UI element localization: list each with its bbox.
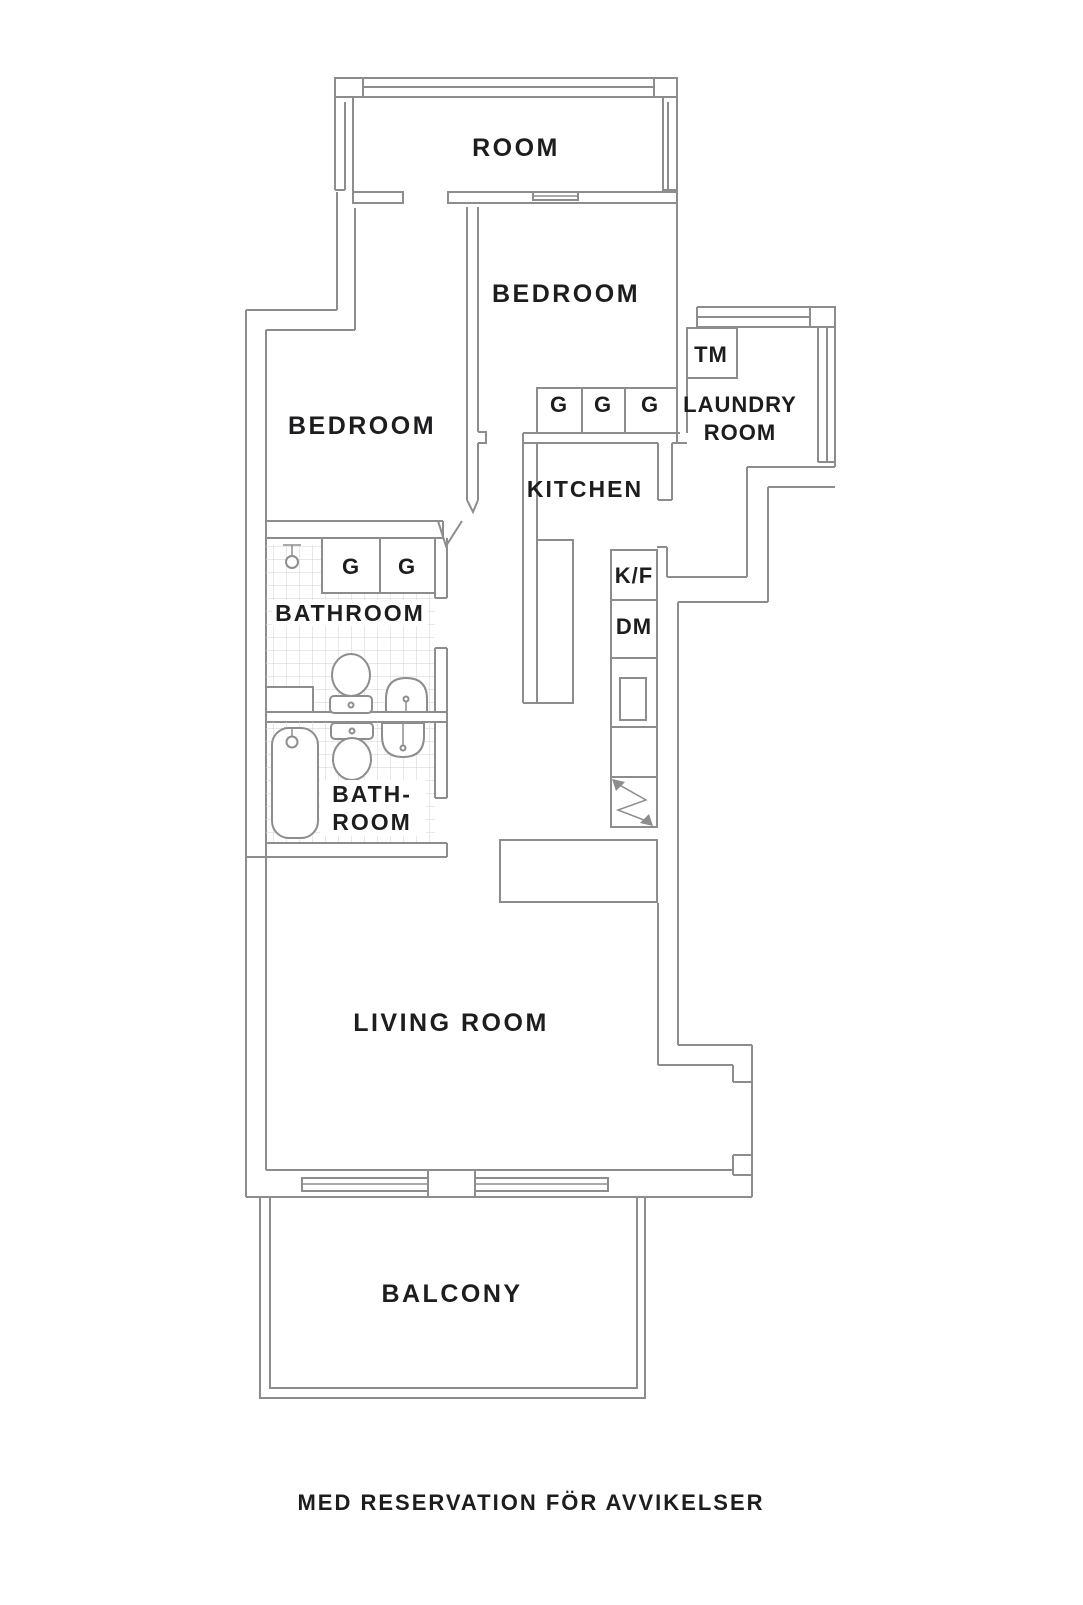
- kitchen-label: KITCHEN: [527, 476, 643, 502]
- wardrobe-label-2: G: [594, 392, 612, 417]
- kitchen-counter: [537, 540, 573, 703]
- window-living-left: [302, 1178, 428, 1191]
- laundry-label-line1: LAUNDRY: [683, 392, 797, 417]
- bedroom-divider-wall: [467, 207, 486, 512]
- kitchen-walls: [523, 433, 687, 703]
- toilet-icon-2: [331, 723, 373, 780]
- fridge-freezer-label: K/F: [615, 563, 653, 588]
- dishwasher-label: DM: [616, 614, 652, 639]
- kitchen-cabinet-column: [611, 550, 657, 827]
- window-room-bedroom: [533, 192, 578, 200]
- toilet-icon: [330, 654, 372, 713]
- window-living-right: [475, 1178, 608, 1191]
- hall-closet-box: [500, 840, 657, 902]
- laundry-label-line2: ROOM: [704, 420, 776, 445]
- bathroom2-label-line1: BATH-: [332, 781, 412, 807]
- balcony-wall-windows: [302, 1170, 608, 1197]
- floor-plan-page: ROOM BEDROOM BEDROOM TM LAUNDRY ROOM G G…: [0, 0, 1083, 1600]
- sink-icon-2: [382, 723, 424, 757]
- washing-machine-label: TM: [694, 342, 728, 367]
- window-right-wall: [733, 1155, 752, 1175]
- wardrobe-label-4: G: [342, 554, 360, 579]
- bathroom-label: BATHROOM: [275, 600, 425, 626]
- disclaimer-text: MED RESERVATION FÖR AVVIKELSER: [297, 1490, 764, 1515]
- wardrobe-label-5: G: [398, 554, 416, 579]
- room-top-label: ROOM: [472, 134, 560, 162]
- wardrobe-boxes-bathroom: [322, 538, 435, 593]
- floor-plan-drawing: ROOM BEDROOM BEDROOM TM LAUNDRY ROOM G G…: [0, 0, 1083, 1600]
- kitchen-sink-icon: [620, 678, 646, 720]
- wardrobe-label-1: G: [550, 392, 568, 417]
- balcony-label: BALCONY: [381, 1280, 522, 1308]
- bathroom-counter: [266, 687, 313, 712]
- bedroom-left-label: BEDROOM: [288, 412, 436, 440]
- door-swing-bedroom: [438, 521, 462, 546]
- sink-icon: [386, 678, 427, 712]
- wardrobe-label-3: G: [641, 392, 659, 417]
- bedroom-right-label: BEDROOM: [492, 280, 640, 308]
- living-room-label: LIVING ROOM: [353, 1009, 549, 1037]
- bathroom2-label-line2: ROOM: [332, 809, 412, 835]
